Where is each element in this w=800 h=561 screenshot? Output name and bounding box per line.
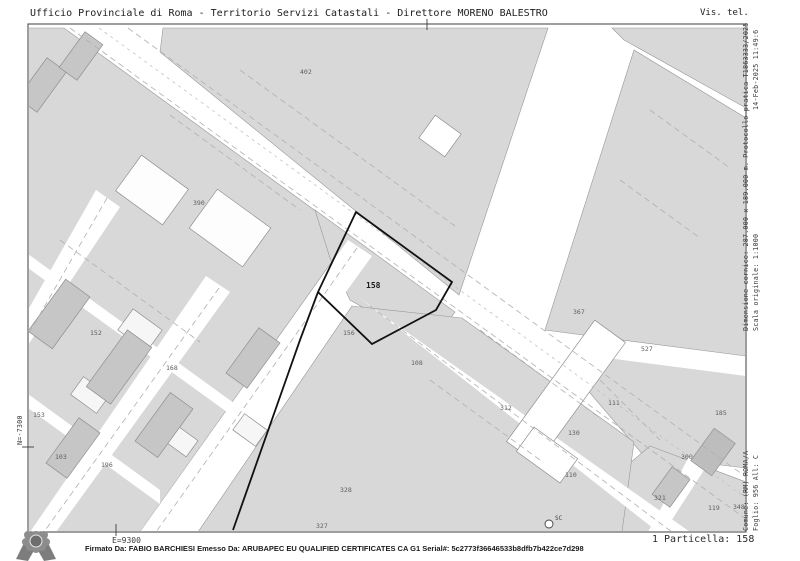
parcel-label: 321 [654, 494, 666, 502]
parcel-label: 390 [193, 199, 205, 207]
protocol-label: Dimensione cornice: 287.000 x 189.000 m.… [742, 22, 750, 331]
parcel-label: 111 [608, 399, 620, 407]
date-label: 14-Feb-2025 11:49:6 [752, 30, 760, 110]
parcel-label: 130 [568, 429, 580, 437]
parcel-label: 103 [55, 453, 67, 461]
particella-label: 1 Particella: 158 [652, 534, 754, 545]
parcel-label: 527 [641, 345, 653, 353]
north-coordinate-label: N=-7300 [16, 415, 24, 445]
parcel-label: 367 [573, 308, 585, 316]
parcel-label: 156 [343, 329, 355, 337]
parcel-label: 108 [411, 359, 423, 367]
parcel-label: 312 [500, 404, 512, 412]
parcel-label: 110 [565, 471, 577, 479]
parcel-label: 196 [101, 461, 113, 469]
parcel-label: 185 [715, 409, 727, 417]
parcel-label: 158 [366, 281, 381, 290]
scale-label: Scala originale: 1:1000 [752, 234, 760, 331]
blocks-layer [28, 28, 746, 532]
seal-icon [8, 526, 64, 561]
foglio-label: Foglio: 956 All: C [752, 455, 760, 531]
survey-marker-label: SC [555, 515, 563, 522]
parcel-label: 153 [33, 411, 45, 419]
signature-text: Firmato Da: FABIO BARCHIESI Emesso Da: A… [85, 544, 584, 553]
parcel-label: 300 [681, 453, 693, 461]
comune-label: Comune: (RM) ROMA/A [742, 451, 750, 531]
parcel-label: 402 [300, 68, 312, 76]
parcel-label: 119 [708, 504, 720, 512]
parcel-label: 152 [90, 329, 102, 337]
parcel-label: 168 [166, 364, 178, 372]
cadastral-map: SC 1581563904023675273121111301101081853… [0, 0, 800, 561]
parcel-label: 328 [340, 486, 352, 494]
parcel-label: 327 [316, 522, 328, 530]
